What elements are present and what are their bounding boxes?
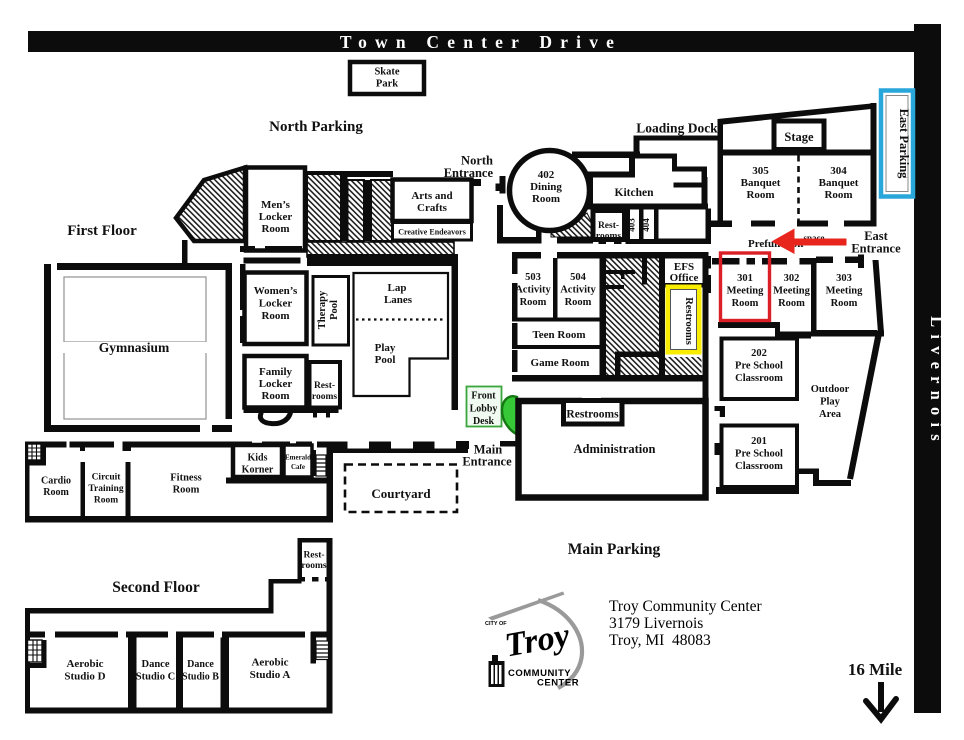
svg-text:Room: Room [532, 193, 560, 205]
svg-text:Play: Play [375, 342, 396, 354]
svg-text:Room: Room [94, 496, 118, 506]
svg-text:303: 303 [836, 273, 852, 284]
svg-text:Meeting: Meeting [727, 286, 764, 297]
svg-text:Dining: Dining [530, 181, 562, 193]
svg-text:Classroom: Classroom [735, 373, 783, 384]
svg-text:Classroom: Classroom [735, 461, 783, 472]
svg-text:Gymnasium: Gymnasium [99, 340, 170, 355]
svg-text:Pool: Pool [375, 354, 396, 366]
svg-text:Studio C: Studio C [136, 672, 175, 683]
svg-text:504: 504 [570, 272, 587, 283]
svg-text:North Parking: North Parking [269, 119, 363, 135]
svg-text:Office: Office [670, 272, 699, 284]
svg-text:Banquet: Banquet [819, 177, 859, 189]
svg-text:Restrooms: Restrooms [566, 409, 619, 421]
svg-text:201: 201 [751, 436, 767, 447]
svg-text:Main Parking: Main Parking [568, 541, 661, 558]
svg-text:Play: Play [820, 397, 841, 408]
svg-text:Studio A: Studio A [250, 669, 291, 681]
svg-text:Rest-: Rest- [598, 221, 619, 231]
svg-text:Room: Room [43, 487, 69, 498]
svg-text:Studio D: Studio D [64, 671, 105, 683]
svg-text:Family: Family [259, 366, 292, 378]
svg-text:Arts and: Arts and [411, 190, 452, 202]
svg-text:Troy, MI 48083: Troy, MI 48083 [609, 632, 711, 649]
svg-text:Pre School: Pre School [735, 449, 783, 460]
svg-text:Aerobic: Aerobic [251, 657, 288, 669]
svg-text:Game Room: Game Room [531, 357, 590, 369]
svg-text:3179 Livernois: 3179 Livernois [609, 615, 703, 632]
svg-text:Loading Dock: Loading Dock [636, 121, 718, 136]
svg-text:402: 402 [538, 169, 555, 181]
svg-text:Meeting: Meeting [826, 286, 863, 297]
svg-text:Room: Room [778, 298, 805, 309]
svg-text:Circuit: Circuit [92, 473, 122, 483]
svg-text:Teen Room: Teen Room [532, 329, 585, 341]
svg-text:Training: Training [88, 484, 123, 494]
svg-text:Kids: Kids [247, 453, 267, 464]
svg-text:Activity: Activity [515, 285, 551, 296]
svg-text:Activity: Activity [560, 285, 596, 296]
svg-text:Livernois: Livernois [927, 316, 946, 448]
svg-text:Stage: Stage [784, 130, 814, 144]
svg-text:Room: Room [746, 189, 774, 201]
svg-text:Dance: Dance [187, 659, 214, 670]
svg-text:Room: Room [565, 297, 592, 308]
svg-text:Rest-: Rest- [303, 551, 324, 561]
svg-text:Town Center Drive: Town Center Drive [340, 32, 622, 52]
svg-text:Men’s: Men’s [261, 199, 291, 211]
svg-text:Entrance: Entrance [851, 242, 901, 256]
svg-text:403: 403 [627, 218, 637, 232]
svg-text:Room: Room [831, 298, 858, 309]
svg-text:Room: Room [261, 390, 289, 402]
svg-text:Desk: Desk [473, 416, 495, 427]
svg-text:16 Mile: 16 Mile [848, 660, 903, 679]
svg-text:Park: Park [376, 79, 398, 90]
svg-text:Front: Front [471, 391, 496, 402]
svg-text:Room: Room [732, 298, 759, 309]
svg-text:404: 404 [641, 218, 651, 232]
svg-text:CITY OF: CITY OF [485, 621, 507, 627]
svg-text:Courtyard: Courtyard [371, 486, 431, 501]
svg-text:Korner: Korner [242, 465, 274, 476]
svg-text:Room: Room [824, 189, 852, 201]
svg-text:rooms: rooms [301, 561, 326, 571]
svg-text:Troy Community Center: Troy Community Center [609, 598, 763, 615]
svg-text:Dance: Dance [142, 659, 170, 670]
svg-text:Crafts: Crafts [417, 202, 448, 214]
svg-text:Fitness: Fitness [170, 473, 202, 484]
svg-text:Restrooms: Restrooms [683, 297, 694, 345]
svg-text:202: 202 [751, 348, 767, 359]
svg-text:Studio B: Studio B [182, 672, 219, 683]
svg-text:Room: Room [261, 223, 289, 235]
svg-text:Rest-: Rest- [314, 381, 335, 391]
svg-text:First Floor: First Floor [67, 223, 137, 239]
svg-text:Cafe: Cafe [291, 463, 305, 471]
svg-text:503: 503 [525, 272, 541, 283]
svg-text:Room: Room [261, 310, 289, 322]
svg-text:302: 302 [784, 273, 800, 284]
svg-text:305: 305 [752, 165, 769, 177]
svg-text:Room: Room [520, 297, 547, 308]
svg-text:CENTER: CENTER [537, 678, 579, 689]
svg-text:Room: Room [173, 485, 200, 496]
svg-text:Administration: Administration [574, 442, 656, 456]
svg-text:Therapy: Therapy [317, 290, 328, 329]
svg-text:Outdoor: Outdoor [811, 384, 850, 395]
svg-text:301: 301 [737, 273, 753, 284]
svg-text:Skate: Skate [374, 67, 399, 78]
svg-text:Lanes: Lanes [384, 294, 413, 306]
svg-text:Lap: Lap [388, 282, 407, 294]
svg-text:Locker: Locker [259, 211, 293, 223]
svg-text:Lobby: Lobby [470, 404, 498, 415]
svg-text:Women’s: Women’s [254, 285, 298, 297]
svg-text:Aerobic: Aerobic [66, 658, 103, 670]
svg-text:Pre School: Pre School [735, 361, 783, 372]
svg-text:East Parking: East Parking [897, 109, 911, 180]
svg-text:Locker: Locker [259, 378, 293, 390]
svg-text:Banquet: Banquet [741, 177, 781, 189]
svg-text:Second Floor: Second Floor [112, 579, 200, 596]
svg-text:Area: Area [819, 409, 842, 420]
svg-text:Entrance: Entrance [462, 455, 512, 469]
svg-text:Locker: Locker [259, 298, 293, 310]
svg-text:rooms: rooms [312, 392, 337, 402]
svg-text:Emerald: Emerald [285, 454, 311, 462]
svg-text:Cardio: Cardio [41, 476, 71, 487]
svg-text:Creative Endeavors: Creative Endeavors [398, 228, 466, 237]
svg-text:Kitchen: Kitchen [615, 187, 655, 199]
svg-text:Meeting: Meeting [773, 286, 810, 297]
svg-text:Pool: Pool [329, 300, 340, 320]
svg-text:304: 304 [830, 165, 847, 177]
